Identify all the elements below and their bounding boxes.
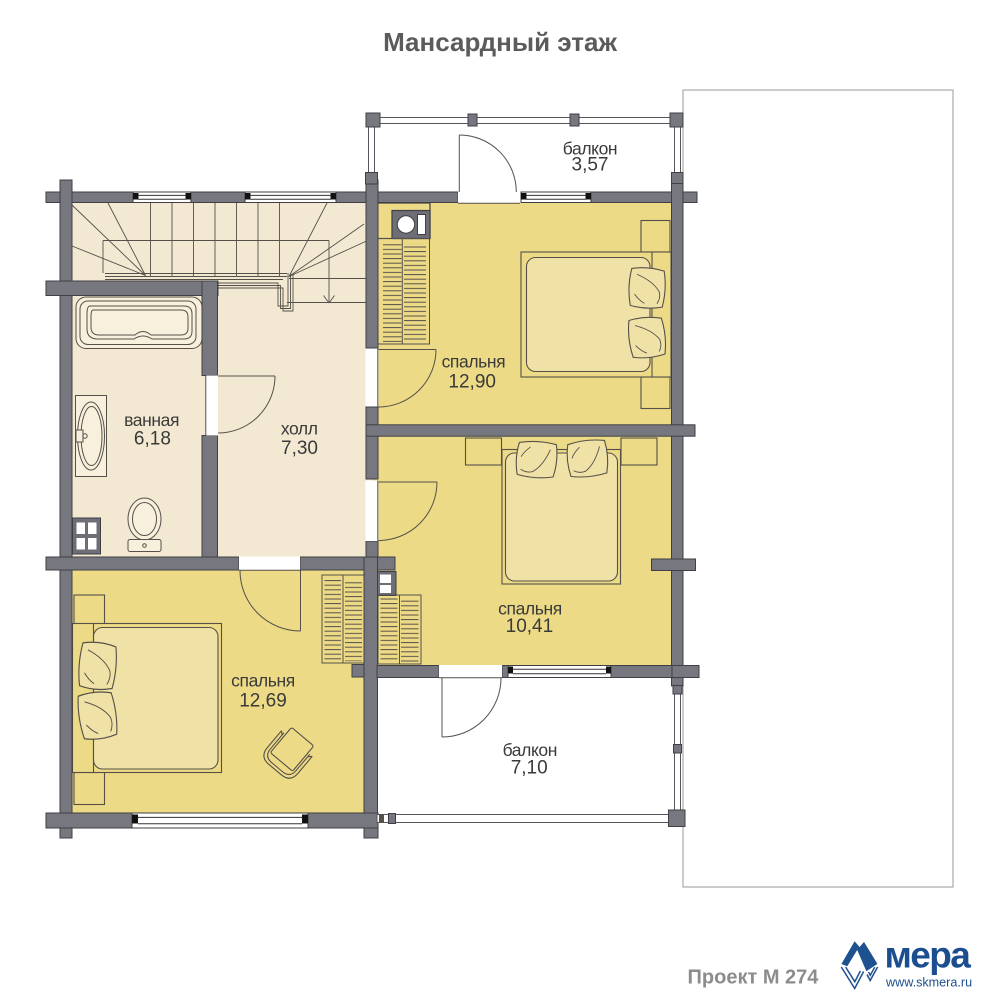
svg-text:12,90: 12,90 [448, 372, 496, 393]
svg-text:холл: холл [281, 419, 318, 439]
svg-text:10,41: 10,41 [506, 616, 554, 637]
svg-text:Проект М 274: Проект М 274 [688, 967, 820, 989]
svg-text:7,10: 7,10 [511, 757, 548, 778]
svg-text:ванная: ванная [124, 410, 179, 430]
svg-text:6,18: 6,18 [134, 429, 171, 450]
svg-text:3,57: 3,57 [572, 154, 609, 175]
svg-text:мера: мера [885, 935, 972, 976]
svg-text:12,69: 12,69 [239, 691, 287, 712]
svg-text:спальня: спальня [442, 351, 506, 371]
svg-text:7,30: 7,30 [281, 438, 318, 459]
svg-text:Мансардный этаж: Мансардный этаж [383, 27, 617, 57]
svg-text:спальня: спальня [231, 671, 295, 691]
svg-text:www.skmera.ru: www.skmera.ru [885, 976, 972, 990]
